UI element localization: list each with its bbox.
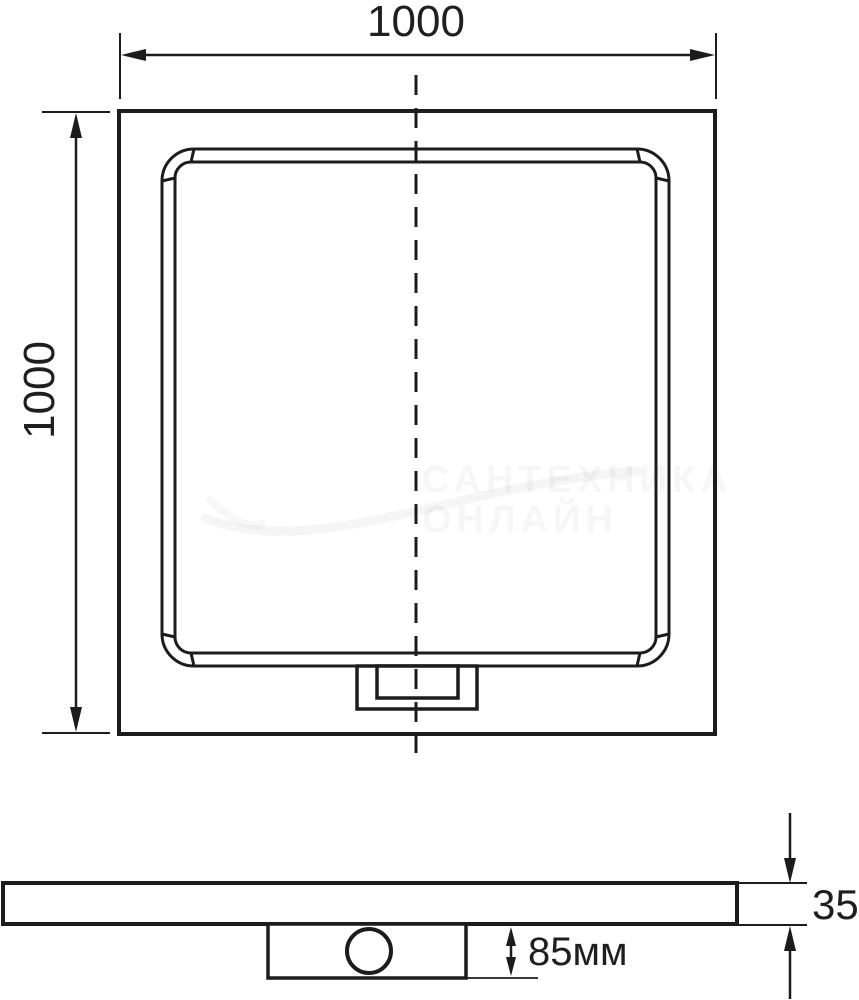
arrowhead-up	[70, 113, 82, 138]
arrowhead-down	[506, 957, 516, 976]
height-dimension-label: 1000	[18, 330, 62, 450]
technical-drawing-canvas: 1000 1000 35 85мм САНТЕХНИКА ОНЛАЙН	[0, 0, 859, 1000]
tray-profile	[3, 883, 737, 924]
top-view	[119, 75, 715, 753]
arrowhead-up	[784, 926, 796, 951]
arrowhead-down	[784, 858, 796, 883]
width-dimension-label: 1000	[336, 0, 496, 44]
arrowhead-up	[506, 927, 516, 946]
watermark-text-line2: ОНЛАЙН	[422, 500, 618, 540]
arrowhead-right	[690, 49, 715, 61]
arrowhead-left	[121, 49, 146, 61]
thickness-dimension-label: 35	[812, 884, 858, 926]
drain-depth-dimension-label: 85мм	[528, 931, 648, 973]
drain-box-side-view	[268, 924, 466, 978]
watermark-text-line1: САНТЕХНИКА	[422, 460, 733, 500]
arrowhead-down	[70, 707, 82, 732]
dimension-thickness	[737, 813, 807, 999]
